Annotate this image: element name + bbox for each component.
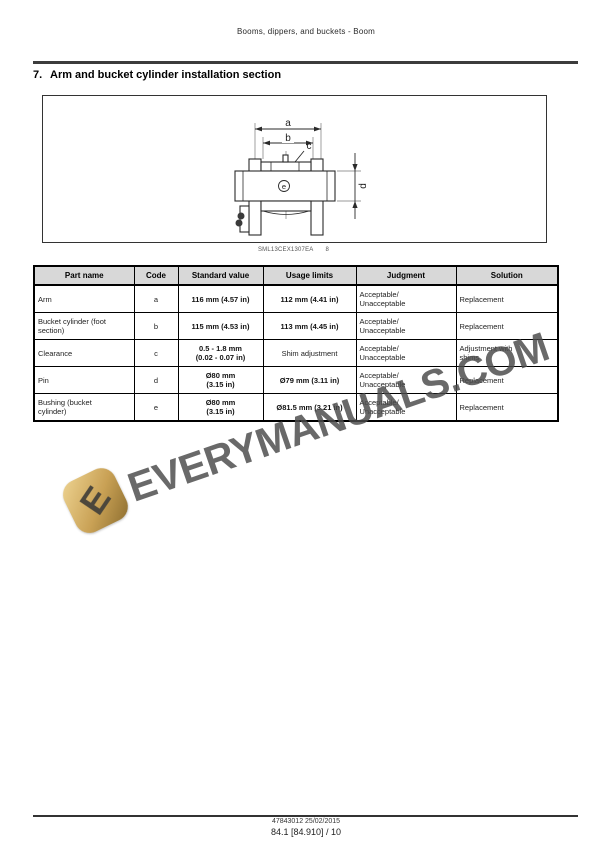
cell-solution: Adjustment with shims [456,340,558,367]
cell-standard: Ø80 mm (3.15 in) [178,367,263,394]
spec-table: Part name Code Standard value Usage limi… [33,265,559,422]
cell-judgment: Acceptable/ Unacceptable [356,367,456,394]
dim-label-d: d [358,183,369,189]
cell-usage: 112 mm (4.41 in) [263,285,356,313]
section-number: 7. [33,69,50,81]
cell-solution: Replacement [456,285,558,313]
footer-page-reference: 84.1 [84.910] / 10 [0,827,612,837]
col-header-judgment: Judgment [356,266,456,285]
table-header-row: Part name Code Standard value Usage limi… [34,266,558,285]
cell-usage: Ø81.5 mm (3.21 in) [263,394,356,422]
col-header-code: Code [134,266,178,285]
figure-caption-code: SML13CEX1307EA [258,247,314,253]
logo-letter: E [71,479,118,522]
cell-part: Bushing (bucket cylinder) [34,394,134,422]
cell-part: Arm [34,285,134,313]
table-row: Clearance c 0.5 - 1.8 mm (0.02 - 0.07 in… [34,340,558,367]
cell-usage: 113 mm (4.45 in) [263,313,356,340]
dim-label-b: b [285,133,291,144]
table-row: Bushing (bucket cylinder) e Ø80 mm (3.15… [34,394,558,422]
col-header-part-name: Part name [34,266,134,285]
section-title-text: Arm and bucket cylinder installation sec… [50,69,281,81]
cell-standard: 115 mm (4.53 in) [178,313,263,340]
running-header: Booms, dippers, and buckets - Boom [0,27,612,36]
cell-part: Bucket cylinder (foot section) [34,313,134,340]
cell-code: c [134,340,178,367]
cell-standard: 116 mm (4.57 in) [178,285,263,313]
figure-caption: SML13CEX1307EA 8 [42,247,545,253]
cell-judgment: Acceptable/ Unacceptable [356,340,456,367]
table-row: Pin d Ø80 mm (3.15 in) Ø79 mm (3.11 in) … [34,367,558,394]
cell-solution: Replacement [456,394,558,422]
col-header-standard-value: Standard value [178,266,263,285]
cell-standard: Ø80 mm (3.15 in) [178,394,263,422]
cell-judgment: Acceptable/ Unacceptable [356,394,456,422]
cell-part: Pin [34,367,134,394]
dim-label-c: c [307,141,312,152]
cell-code: d [134,367,178,394]
footer-doc-number-date: 47843012 25/02/2015 [0,818,612,825]
col-header-solution: Solution [456,266,558,285]
cell-code: e [134,394,178,422]
everymanuals-logo-icon: E [57,462,135,540]
figure-box: a b c d e [42,95,547,243]
figure-caption-number: 8 [325,247,329,253]
table-row: Bucket cylinder (foot section) b 115 mm … [34,313,558,340]
table-row: Arm a 116 mm (4.57 in) 112 mm (4.41 in) … [34,285,558,313]
cell-code: a [134,285,178,313]
col-header-usage-limits: Usage limits [263,266,356,285]
cell-code: b [134,313,178,340]
cell-usage: Shim adjustment [263,340,356,367]
header-rule [33,61,578,64]
cell-judgment: Acceptable/ Unacceptable [356,313,456,340]
cell-solution: Replacement [456,367,558,394]
cell-part: Clearance [34,340,134,367]
arm-cylinder-diagram: a b c d e [43,96,546,242]
section-title: 7. Arm and bucket cylinder installation … [33,69,281,81]
dim-label-e: e [282,182,286,191]
cell-usage: Ø79 mm (3.11 in) [263,367,356,394]
cell-judgment: Acceptable/ Unacceptable [356,285,456,313]
cell-standard: 0.5 - 1.8 mm (0.02 - 0.07 in) [178,340,263,367]
cell-solution: Replacement [456,313,558,340]
dim-label-a: a [285,118,291,129]
footer-rule [33,815,578,817]
